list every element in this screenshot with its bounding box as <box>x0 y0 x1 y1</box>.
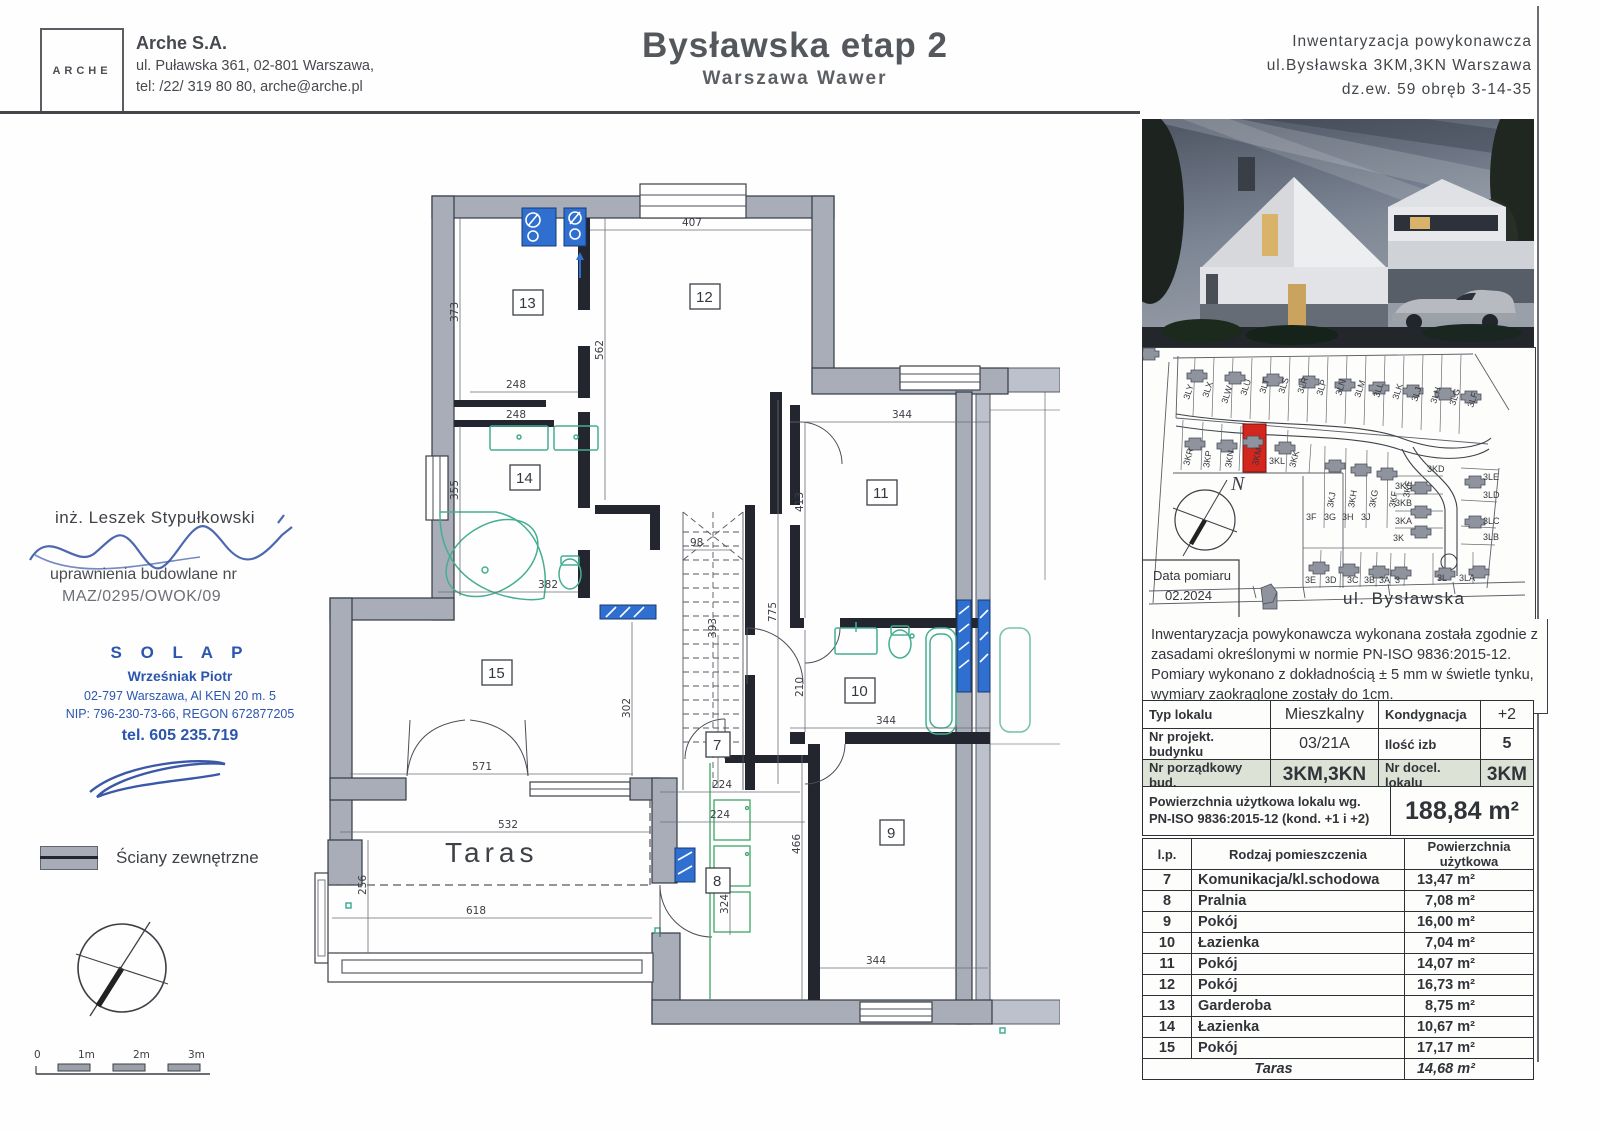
svg-text:210: 210 <box>794 677 806 697</box>
survey-info-block: Inwentaryzacja powykonawcza ul.Bysławska… <box>1090 30 1532 102</box>
svg-text:3LD: 3LD <box>1483 490 1500 500</box>
room-7-label: 7 <box>713 737 721 754</box>
svg-text:532: 532 <box>498 819 518 831</box>
scale-1m: 1m <box>78 1049 95 1061</box>
area-summary-label: Powierzchnia użytkowa lokalu wg. PN-ISO … <box>1143 787 1391 836</box>
svg-text:3KG: 3KG <box>1367 489 1380 508</box>
ilosc-izb-label: Ilość izb <box>1378 729 1480 760</box>
company-phone: tel: /22/ 319 80 80, arche@arche.pl <box>136 77 374 98</box>
table-row: 15Pokój17,17 m² <box>1143 1038 1534 1059</box>
table-row: 8Pralnia7,08 m² <box>1143 891 1534 912</box>
floor-plan: 407 373 248 248 562 355 382 98 393 775 3… <box>300 160 1060 1060</box>
svg-text:344: 344 <box>866 955 886 967</box>
table-row: 9Pokój16,00 m² <box>1143 912 1534 933</box>
document-title-block: Bysławska etap 2 Warszawa Wawer <box>565 26 1025 90</box>
house-photo <box>1142 119 1534 347</box>
svg-text:248: 248 <box>506 379 526 391</box>
svg-text:3KA: 3KA <box>1395 516 1412 526</box>
stamp-company: S O L A P <box>30 640 330 666</box>
svg-text:224: 224 <box>712 779 732 791</box>
svg-text:3KJ: 3KJ <box>1325 491 1338 508</box>
room-8-label: 8 <box>713 873 721 890</box>
stamp-ids: NIP: 796-230-73-66, REGON 672877205 <box>30 705 330 724</box>
col-area: Powierzchnia użytkowa <box>1405 839 1534 870</box>
svg-text:3LA: 3LA <box>1459 573 1475 583</box>
company-block: Arche S.A. ul. Puławska 361, 02-801 Wars… <box>136 30 374 98</box>
ilosc-izb-value: 5 <box>1480 729 1533 760</box>
svg-text:224: 224 <box>710 809 730 821</box>
svg-text:3KN: 3KN <box>1223 449 1236 468</box>
license-number: MAZ/0295/OWOK/09 <box>62 588 221 606</box>
area-label-line2: PN-ISO 9836:2015-12 (kond. +1 i +2) <box>1149 811 1369 826</box>
svg-text:98: 98 <box>690 537 703 549</box>
col-lp: l.p. <box>1143 839 1192 870</box>
room-14-label: 14 <box>516 470 533 487</box>
taras-label: Taras <box>445 837 538 868</box>
site-plan: 3LY 3LX 3LW 3LU 3LT 3LS 3LR 3LP 3LN 3LM … <box>1142 347 1536 621</box>
svg-text:3H: 3H <box>1342 512 1354 522</box>
svg-text:3F: 3F <box>1306 512 1317 522</box>
neighbour-unit <box>976 368 1060 1024</box>
survey-line-1: Inwentaryzacja powykonawcza <box>1090 30 1532 54</box>
svg-text:571: 571 <box>472 761 492 773</box>
license-label: uprawnienia budowlane nr <box>50 566 237 584</box>
page-subtitle: Warszawa Wawer <box>565 68 1025 90</box>
svg-text:373: 373 <box>449 302 461 322</box>
typ-lokalu-label: Typ lokalu <box>1143 701 1271 729</box>
scale-3m: 3m <box>188 1049 205 1061</box>
table-row: 10Łazienka7,04 m² <box>1143 933 1534 954</box>
svg-text:3LW: 3LW <box>1219 384 1234 405</box>
wall-swatch <box>40 846 98 870</box>
kondygnacja-value: +2 <box>1480 701 1533 729</box>
svg-text:3KL: 3KL <box>1269 456 1285 466</box>
header-divider <box>0 111 1140 114</box>
legend-label: Ściany zewnętrzne <box>116 848 259 868</box>
svg-text:3: 3 <box>1395 575 1400 585</box>
unit-info-table: Typ lokalu Mieszkalny Kondygnacja +2 Nr … <box>1142 700 1534 791</box>
solap-stamp: S O L A P Wrześniak Piotr 02-797 Warszaw… <box>30 640 330 748</box>
date-label: Data pomiaru <box>1153 568 1231 583</box>
svg-text:3KC: 3KC <box>1395 481 1413 491</box>
svg-text:775: 775 <box>767 602 779 622</box>
table-row: 12Pokój16,73 m² <box>1143 975 1534 996</box>
typ-lokalu-value: Mieszkalny <box>1270 701 1378 729</box>
arche-logo-text: ARCHE <box>52 65 111 77</box>
survey-line-2: ul.Bysławska 3KM,3KN Warszawa <box>1090 54 1532 78</box>
svg-text:3A: 3A <box>1379 575 1390 585</box>
svg-text:3G: 3G <box>1324 512 1336 522</box>
north-label: N <box>1230 473 1246 495</box>
nr-projektu-value: 03/21A <box>1270 729 1378 760</box>
kondygnacja-label: Kondygnacja <box>1378 701 1480 729</box>
total-area-value: 188,84 m² <box>1391 787 1534 836</box>
svg-text:3B: 3B <box>1364 575 1375 585</box>
svg-text:3LB: 3LB <box>1483 532 1499 542</box>
utility-shafts <box>522 208 990 882</box>
table-row: 13Garderoba8,75 m² <box>1143 996 1534 1017</box>
table-header-row: l.p. Rodzaj pomieszczenia Powierzchnia u… <box>1143 839 1534 870</box>
table-row: 11Pokój14,07 m² <box>1143 954 1534 975</box>
table-row: Typ lokalu Mieszkalny Kondygnacja +2 <box>1143 701 1534 729</box>
svg-text:3KD: 3KD <box>1427 464 1445 474</box>
area-label-line1: Powierzchnia użytkowa lokalu wg. <box>1149 794 1361 809</box>
svg-text:3KR: 3KR <box>1181 447 1195 467</box>
svg-text:302: 302 <box>621 698 633 718</box>
svg-text:618: 618 <box>466 905 486 917</box>
svg-text:382: 382 <box>538 579 558 591</box>
room-13-label: 13 <box>519 295 536 312</box>
compass-icon <box>60 910 190 1030</box>
svg-text:355: 355 <box>449 480 461 500</box>
svg-text:466: 466 <box>791 834 803 854</box>
stamp-signature <box>85 752 235 807</box>
svg-text:3E: 3E <box>1305 575 1316 585</box>
table-row-taras: Taras 14,68 m² <box>1143 1059 1534 1080</box>
nr-projektu-label: Nr projekt. budynku <box>1143 729 1271 760</box>
toilet <box>559 559 581 589</box>
street-label: ul. Bysławska <box>1343 589 1465 608</box>
svg-text:3LC: 3LC <box>1483 516 1500 526</box>
svg-text:562: 562 <box>594 340 606 360</box>
room-10-label: 10 <box>851 683 868 700</box>
room-12-label: 12 <box>696 289 713 306</box>
table-row: Powierzchnia użytkowa lokalu wg. PN-ISO … <box>1143 787 1534 836</box>
scale-0: 0 <box>34 1049 41 1061</box>
svg-text:3J: 3J <box>1361 512 1371 522</box>
siteplan-compass-icon: N <box>1173 473 1246 556</box>
exterior-walls <box>328 196 1008 1024</box>
area-summary-table: Powierzchnia użytkowa lokalu wg. PN-ISO … <box>1142 786 1534 836</box>
svg-text:3KB: 3KB <box>1395 498 1412 508</box>
svg-text:3D: 3D <box>1325 575 1337 585</box>
scale-2m: 2m <box>133 1049 150 1061</box>
svg-text:3K: 3K <box>1393 533 1404 543</box>
table-row: 7Komunikacja/kl.schodowa13,47 m² <box>1143 870 1534 891</box>
room-11-label: 11 <box>873 485 889 502</box>
room-9-label: 9 <box>887 825 895 842</box>
room-15-label: 15 <box>488 665 505 682</box>
company-address: ul. Puławska 361, 02-801 Warszawa, <box>136 56 374 77</box>
svg-text:3KP: 3KP <box>1201 450 1214 468</box>
siteplan-date-box: Data pomiaru 02.2024 <box>1143 560 1239 617</box>
svg-text:344: 344 <box>876 715 896 727</box>
svg-text:407: 407 <box>682 217 702 229</box>
survey-line-3: dz.ew. 59 obręb 3-14-35 <box>1090 78 1532 102</box>
page-title: Bysławska etap 2 <box>565 26 1025 66</box>
scanned-floorplan-document: ARCHE Arche S.A. ul. Puławska 361, 02-80… <box>0 0 1600 1130</box>
company-name: Arche S.A. <box>136 30 374 56</box>
stamp-person: Wrześniak Piotr <box>30 666 330 687</box>
col-room: Rodzaj pomieszczenia <box>1192 839 1405 870</box>
svg-text:413: 413 <box>794 492 806 512</box>
svg-text:3L: 3L <box>1437 573 1447 583</box>
stamp-address: 02-797 Warszawa, Al KEN 20 m. 5 <box>30 687 330 706</box>
svg-text:3C: 3C <box>1347 575 1359 585</box>
svg-text:256: 256 <box>357 875 369 895</box>
svg-text:248: 248 <box>506 409 526 421</box>
rooms-table: l.p. Rodzaj pomieszczenia Powierzchnia u… <box>1142 838 1534 1080</box>
table-row: 14Łazienka10,67 m² <box>1143 1017 1534 1038</box>
svg-text:344: 344 <box>892 409 912 421</box>
svg-text:393: 393 <box>707 618 719 638</box>
legend-exterior-walls: Ściany zewnętrzne <box>40 846 259 870</box>
table-row: Nr projekt. budynku 03/21A Ilość izb 5 <box>1143 729 1534 760</box>
svg-text:3LE: 3LE <box>1483 472 1499 482</box>
arche-logo: ARCHE <box>40 28 124 114</box>
date-value: 02.2024 <box>1165 588 1212 603</box>
page-frame-line <box>1537 6 1539 1062</box>
svg-text:324: 324 <box>719 894 731 914</box>
svg-text:3KH: 3KH <box>1346 489 1359 508</box>
stamp-phone: tel. 605 235.719 <box>30 724 330 748</box>
scale-bar: 0 1m 2m 3m <box>30 1038 240 1084</box>
